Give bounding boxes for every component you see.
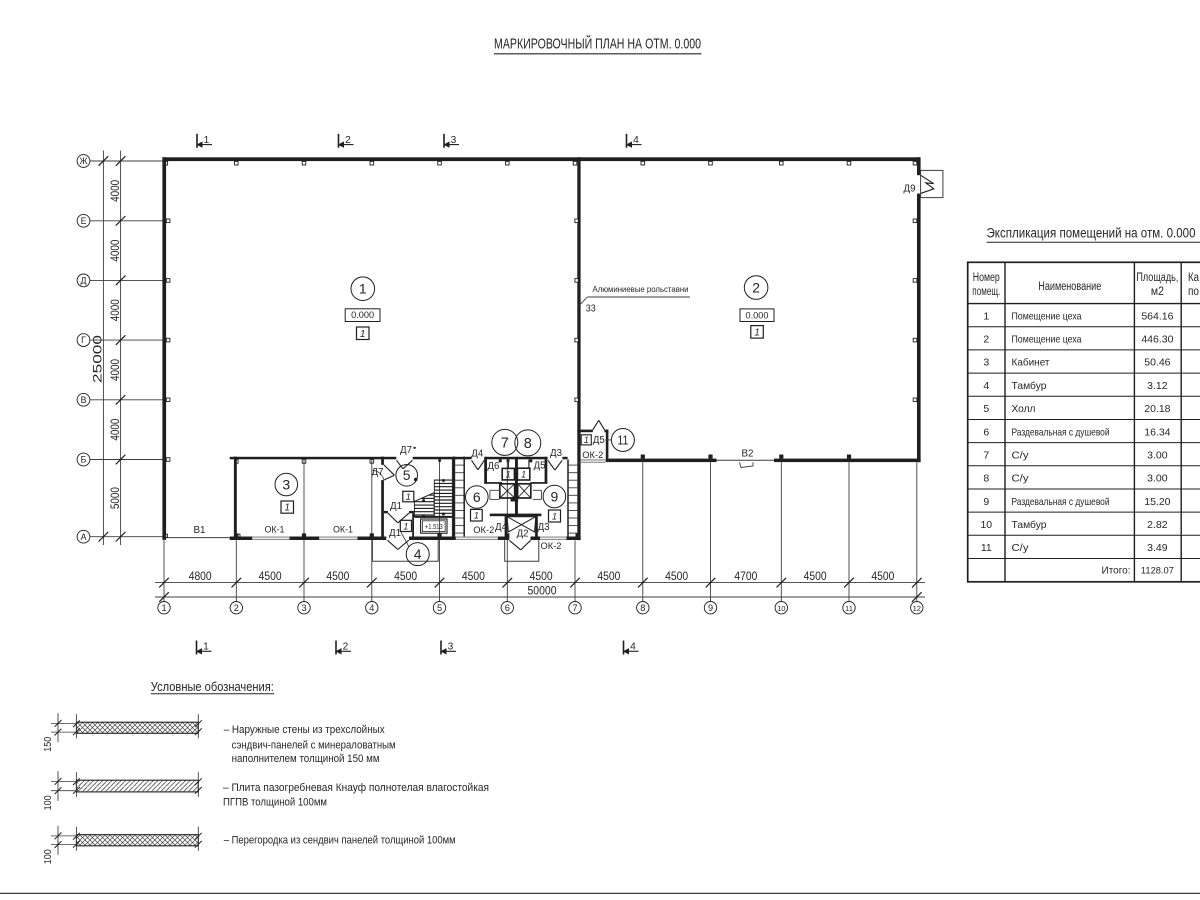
svg-text:10: 10	[777, 604, 785, 613]
svg-text:1: 1	[552, 512, 557, 522]
svg-text:10: 10	[980, 519, 992, 531]
svg-text:ПГПВ толщиной 100мм: ПГПВ толщиной 100мм	[223, 797, 327, 809]
svg-text:2: 2	[234, 603, 239, 613]
svg-text:ОК-2: ОК-2	[473, 525, 494, 536]
svg-text:С/у: С/у	[1012, 473, 1030, 485]
svg-text:4500: 4500	[326, 569, 349, 583]
svg-text:Тамбур: Тамбур	[1012, 519, 1047, 531]
svg-text:1: 1	[754, 328, 760, 339]
svg-text:100: 100	[42, 795, 54, 810]
svg-text:ОК-2: ОК-2	[582, 450, 603, 461]
svg-text:Площадь,: Площадь,	[1136, 272, 1178, 284]
svg-text:4000: 4000	[108, 180, 122, 202]
svg-text:446.30: 446.30	[1141, 334, 1173, 346]
svg-text:15.20: 15.20	[1144, 496, 1170, 508]
svg-text:150: 150	[42, 737, 54, 752]
svg-text:4000: 4000	[108, 239, 122, 261]
svg-text:помещ.: помещ.	[972, 286, 1000, 298]
svg-text:Условные обозначения:: Условные обозначения:	[151, 680, 274, 694]
svg-text:4700: 4700	[734, 569, 757, 583]
svg-text:3.49: 3.49	[1147, 542, 1168, 554]
svg-text:9: 9	[551, 488, 559, 504]
svg-text:33: 33	[586, 303, 596, 314]
svg-text:1: 1	[204, 135, 210, 146]
svg-text:4: 4	[983, 380, 989, 392]
svg-text:3: 3	[983, 357, 989, 369]
svg-text:1: 1	[474, 511, 479, 521]
svg-text:1: 1	[161, 603, 166, 613]
svg-text:2: 2	[345, 135, 351, 146]
svg-text:4: 4	[633, 135, 639, 146]
svg-text:2: 2	[983, 334, 989, 346]
svg-text:Е: Е	[81, 216, 87, 226]
svg-text:А: А	[81, 532, 87, 542]
svg-text:Д5: Д5	[534, 460, 547, 471]
svg-text:4500: 4500	[394, 569, 417, 583]
svg-text:1: 1	[521, 470, 526, 480]
svg-text:12: 12	[913, 604, 921, 613]
svg-text:1128.07: 1128.07	[1141, 566, 1174, 577]
svg-text:6: 6	[983, 426, 989, 438]
svg-text:3: 3	[301, 603, 306, 613]
svg-text:2: 2	[343, 642, 349, 653]
svg-text:МАРКИРОВОЧНЫЙ ПЛАН НА ОТМ. 0.0: МАРКИРОВОЧНЫЙ ПЛАН НА ОТМ. 0.000	[494, 35, 701, 53]
svg-text:Тамбур: Тамбур	[1012, 380, 1047, 392]
svg-text:4500: 4500	[597, 569, 620, 583]
svg-text:1: 1	[203, 642, 209, 653]
svg-text:Холл: Холл	[1012, 403, 1036, 415]
svg-text:6: 6	[505, 603, 510, 613]
svg-text:3: 3	[448, 642, 454, 653]
svg-text:Д: Д	[81, 276, 87, 286]
svg-text:4500: 4500	[530, 569, 553, 583]
svg-text:4000: 4000	[108, 299, 122, 321]
svg-text:564.16: 564.16	[1141, 310, 1173, 322]
svg-text:– Перегородка из сендвич панел: – Перегородка из сендвич панелей толщино…	[224, 834, 456, 846]
svg-text:Номер: Номер	[973, 272, 1000, 284]
svg-text:1: 1	[360, 329, 366, 340]
svg-text:Г: Г	[81, 335, 86, 345]
svg-text:В: В	[81, 395, 87, 405]
svg-text:1: 1	[506, 470, 511, 480]
svg-text:16.34: 16.34	[1144, 426, 1170, 438]
svg-text:Д1: Д1	[389, 528, 401, 539]
svg-text:11: 11	[981, 542, 992, 554]
svg-text:Ж: Ж	[79, 156, 87, 166]
svg-text:Ка: Ка	[1188, 272, 1199, 284]
svg-text:0.000: 0.000	[351, 310, 374, 320]
svg-text:5: 5	[437, 603, 442, 613]
svg-text:9: 9	[708, 603, 713, 613]
svg-text:8: 8	[640, 603, 645, 613]
svg-text:Д9: Д9	[904, 184, 916, 195]
svg-text:Д2: Д2	[517, 529, 529, 540]
svg-text:Кабинет: Кабинет	[1012, 357, 1050, 369]
svg-text:Д6: Д6	[487, 461, 500, 472]
svg-text:Наименование: Наименование	[1038, 281, 1101, 293]
svg-text:4500: 4500	[259, 569, 282, 583]
svg-text:11: 11	[845, 604, 853, 613]
svg-text:4: 4	[369, 603, 374, 613]
svg-text:8: 8	[524, 436, 532, 452]
svg-text:7: 7	[501, 436, 509, 452]
svg-text:1: 1	[403, 521, 408, 531]
svg-text:С/у: С/у	[1012, 449, 1030, 461]
svg-text:3: 3	[282, 476, 290, 492]
svg-text:4500: 4500	[462, 569, 485, 583]
svg-text:Д7: Д7	[372, 467, 384, 478]
svg-text:4800: 4800	[189, 569, 212, 583]
svg-text:3: 3	[451, 135, 457, 146]
svg-text:С/у: С/у	[1012, 542, 1030, 554]
svg-text:3.00: 3.00	[1147, 449, 1168, 461]
svg-text:В1: В1	[194, 525, 206, 536]
svg-text:Д5: Д5	[593, 435, 606, 446]
svg-text:7: 7	[572, 603, 577, 613]
svg-text:Д4: Д4	[495, 522, 508, 533]
svg-text:Д4: Д4	[471, 448, 484, 459]
svg-text:В2: В2	[742, 448, 754, 459]
svg-text:0.000: 0.000	[746, 310, 769, 320]
svg-text:наполнителем толщиной 150 мм: наполнителем толщиной 150 мм	[232, 753, 380, 765]
svg-text:Помещение цеха: Помещение цеха	[1012, 310, 1082, 322]
svg-text:по: по	[1188, 286, 1199, 298]
svg-text:4000: 4000	[108, 418, 122, 440]
svg-text:Экспликация помещений на отм.: Экспликация помещений на отм. 0.000	[987, 225, 1196, 240]
svg-text:Д3: Д3	[550, 448, 563, 459]
svg-text:2.82: 2.82	[1147, 519, 1168, 531]
svg-text:8: 8	[983, 473, 989, 485]
svg-text:25000: 25000	[93, 335, 105, 383]
svg-text:1: 1	[584, 435, 589, 445]
svg-text:4500: 4500	[871, 569, 894, 583]
svg-text:5: 5	[403, 467, 411, 483]
svg-text:Раздевальная с душевой: Раздевальная с душевой	[1012, 426, 1110, 438]
svg-text:4000: 4000	[108, 359, 122, 381]
svg-text:5: 5	[983, 403, 989, 415]
svg-text:1: 1	[359, 281, 367, 297]
svg-text:11: 11	[617, 433, 628, 448]
svg-text:6: 6	[473, 489, 481, 505]
svg-text:2: 2	[752, 280, 760, 296]
svg-text:1: 1	[983, 310, 989, 322]
svg-text:Д7: Д7	[400, 445, 412, 456]
svg-text:3.12: 3.12	[1147, 380, 1168, 392]
svg-text:3.00: 3.00	[1147, 473, 1168, 485]
svg-text:1: 1	[406, 492, 411, 502]
svg-text:4: 4	[630, 642, 636, 653]
svg-text:1: 1	[284, 503, 290, 514]
svg-text:Алюминиевые рольставни: Алюминиевые рольставни	[593, 284, 689, 294]
svg-text:Д1: Д1	[390, 501, 402, 512]
svg-text:4500: 4500	[665, 569, 688, 583]
svg-text:ОК-1: ОК-1	[333, 525, 353, 536]
svg-text:м2: м2	[1151, 286, 1164, 298]
svg-text:20.18: 20.18	[1144, 403, 1170, 415]
svg-text:4: 4	[414, 546, 422, 562]
svg-text:Итого:: Итого:	[1102, 565, 1131, 577]
svg-text:4500: 4500	[804, 569, 827, 583]
svg-text:7: 7	[983, 449, 989, 461]
svg-text:100: 100	[42, 849, 54, 864]
svg-text:ОК-1: ОК-1	[265, 525, 285, 536]
svg-text:сэндвич-панелей с минераловатн: сэндвич-панелей с минераловатным	[232, 739, 396, 751]
svg-text:+1.513: +1.513	[425, 522, 443, 531]
svg-text:Д3: Д3	[538, 522, 551, 533]
svg-text:– Наружные стены из трехслойны: – Наружные стены из трехслойных	[224, 724, 385, 736]
svg-text:Помещение цеха: Помещение цеха	[1012, 334, 1082, 346]
svg-text:Раздевальная с душевой: Раздевальная с душевой	[1012, 496, 1110, 508]
svg-text:5000: 5000	[108, 487, 122, 509]
svg-text:50.46: 50.46	[1144, 357, 1170, 369]
svg-text:– Плита пазогребневая Кнауф по: – Плита пазогребневая Кнауф полнотелая в…	[223, 782, 489, 794]
svg-text:Б: Б	[81, 455, 87, 465]
svg-text:ОК-2: ОК-2	[541, 541, 562, 552]
svg-text:50000: 50000	[528, 583, 557, 597]
svg-text:9: 9	[983, 496, 989, 508]
